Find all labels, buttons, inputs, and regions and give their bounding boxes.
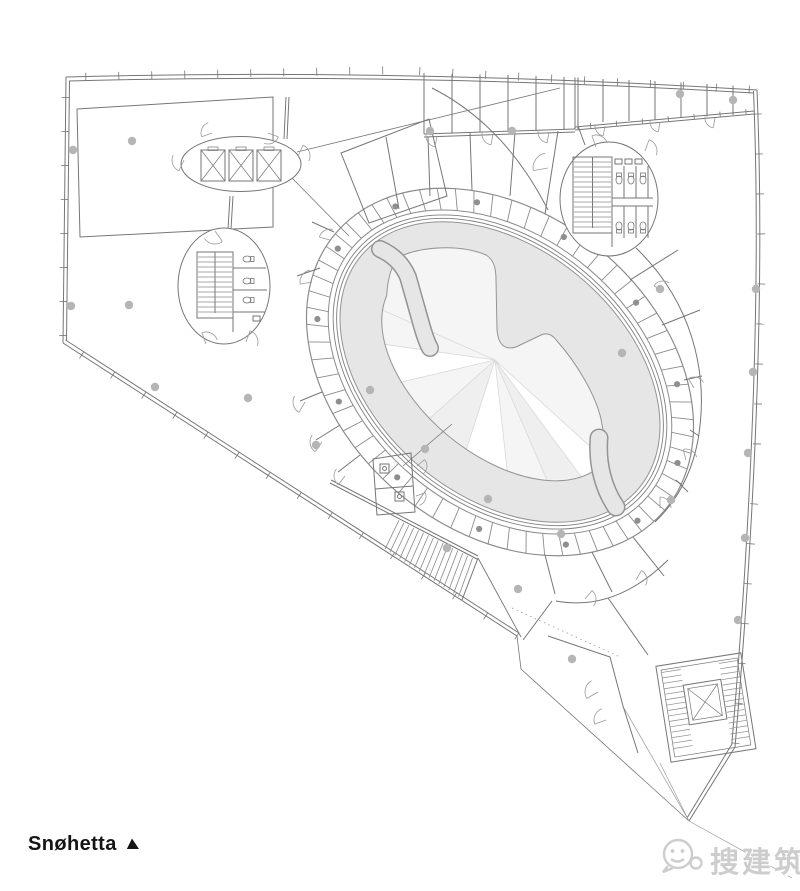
- watermark-text: 搜建筑: [710, 846, 800, 879]
- south-fan-links: [523, 598, 648, 655]
- elevator-pod-link-wall: [284, 97, 289, 139]
- elevator-pod-shell: [181, 137, 301, 192]
- north-fan-arc-wall: [432, 88, 548, 210]
- service-fixture: [380, 464, 389, 473]
- west-pod-shell: [178, 228, 270, 344]
- bubble-eye: [671, 849, 675, 853]
- elevator-x: [688, 684, 723, 720]
- ne-pod-shell: [560, 142, 658, 256]
- site-lines: [512, 608, 792, 878]
- south-fan-arc-wall: [556, 560, 668, 603]
- logo: Snøhetta: [28, 833, 139, 855]
- row-divider-wall: [575, 78, 578, 130]
- logo-text: Snøhetta: [28, 833, 117, 855]
- north-row-b-front-wall: [575, 111, 754, 130]
- fixture-glyph: [383, 467, 387, 471]
- floor-plan-drawing: Snøhetta 搜建筑 搜建筑: [0, 0, 800, 891]
- west-facade-inner: [67, 81, 70, 341]
- pod-to-pod-link: [228, 196, 233, 229]
- bubble-small: [691, 858, 702, 869]
- south-wing-edge: [517, 636, 689, 821]
- north-facade-inner: [69, 78, 754, 93]
- stair-wc-pod-west: [178, 228, 270, 344]
- east-facade-inner: [732, 91, 756, 744]
- bubble-eye: [681, 849, 685, 853]
- north-row-a-front-wall: [424, 129, 575, 137]
- stair-wc-pod-northeast: [560, 142, 658, 256]
- mountain-icon: [118, 838, 139, 850]
- southwest-ring-stubs: [300, 392, 360, 472]
- bubble-face: [664, 840, 692, 868]
- service-room: [373, 453, 415, 515]
- vertex-construction-lines: [624, 708, 689, 821]
- north-fan-partitions: [428, 131, 558, 214]
- south-fan-partitions: [545, 537, 664, 594]
- pod-atrium-link: [292, 178, 349, 236]
- floor-plan-canvas: Snøhetta 搜建筑 搜建筑: [0, 0, 800, 891]
- southeast-facade-inner: [687, 744, 732, 818]
- watermark: 搜建筑 搜建筑: [663, 840, 800, 881]
- elevator-bank-pod: [181, 137, 301, 192]
- north-row-a-partitions: [424, 73, 564, 134]
- chat-bubble-icon: [663, 840, 702, 872]
- fixture-glyph: [398, 495, 402, 499]
- west-facade: [63, 77, 66, 343]
